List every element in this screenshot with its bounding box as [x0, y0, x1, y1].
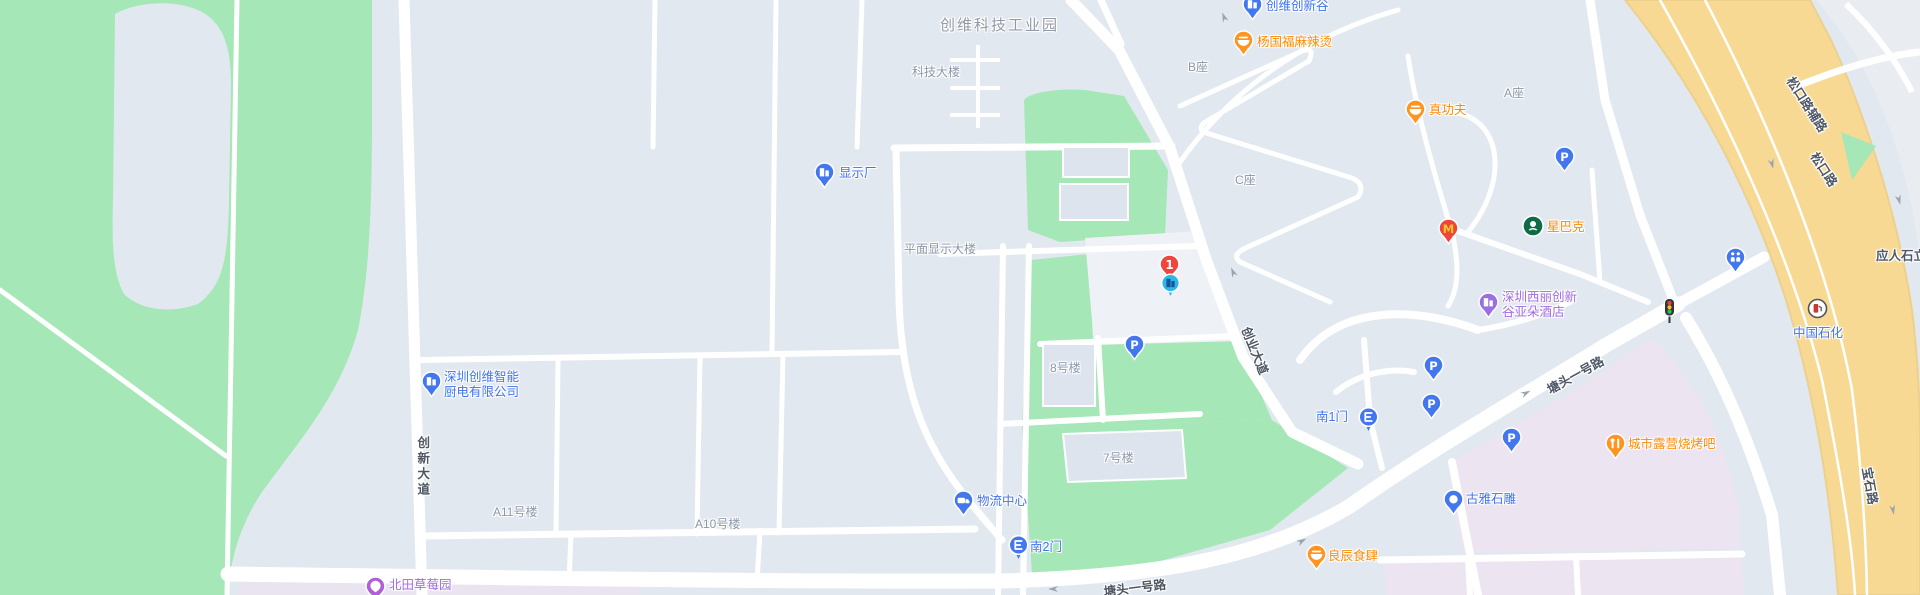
label-chuangwei-tech-industrial-park: 创维科技工业园: [940, 17, 1059, 35]
label-block-b: B座: [1188, 60, 1208, 75]
svg-text:P: P: [1560, 149, 1568, 163]
label-songkou-road-auxiliary: 松口路辅路: [1783, 75, 1830, 136]
map-overlay-layer: 创维科技工业园科技大楼平面显示大楼B座C座A座8号楼7号楼A11号楼A10号楼显…: [0, 0, 1920, 595]
marker-guya-stone-carving-icon[interactable]: [1442, 489, 1465, 516]
marker-city-camping-bbq-icon[interactable]: [1604, 433, 1627, 460]
label-guya-stone-carving[interactable]: 古雅石雕: [1466, 492, 1516, 507]
marker-starbucks-icon[interactable]: [1521, 214, 1545, 238]
svg-text:P: P: [1507, 430, 1515, 444]
marker-south-gate-2-icon[interactable]: [1007, 534, 1030, 561]
label-south-gate-2[interactable]: 南2门: [1030, 540, 1062, 555]
marker-parking-a-icon[interactable]: P: [1553, 146, 1576, 173]
marker-xianshichang-icon[interactable]: [813, 162, 836, 189]
label-atour-hotel[interactable]: 深圳西丽创新 谷亚朵酒店: [1502, 290, 1577, 321]
label-beitian-strawberry-garden[interactable]: 北田草莓园: [389, 578, 452, 593]
label-zhengongfu[interactable]: 真功夫: [1429, 103, 1467, 118]
marker-yangguofu-malatang-icon[interactable]: [1232, 30, 1255, 57]
label-logistics-center[interactable]: 物流中心: [977, 494, 1027, 509]
marker-zhengongfu-icon[interactable]: [1404, 99, 1427, 126]
label-block-a: A座: [1504, 86, 1524, 101]
label-tangtou-no1-road-east: 塘头一号路: [1545, 354, 1607, 398]
label-building-a11: A11号楼: [493, 505, 537, 520]
label-building-8: 8号楼: [1050, 361, 1081, 376]
marker-company-highlight-icon[interactable]: [1159, 273, 1182, 300]
label-chuangye-avenue: 创业大道: [1238, 325, 1271, 377]
marker-parking-b-icon[interactable]: P: [1123, 334, 1146, 361]
marker-parking-e-icon[interactable]: P: [1500, 427, 1523, 454]
marker-chuangwei-innovation-valley-icon[interactable]: [1241, 0, 1264, 21]
svg-text:P: P: [1130, 337, 1138, 351]
marker-parking-c-icon[interactable]: P: [1422, 355, 1445, 382]
label-tangtou-no1-road-south: 塘头一号路: [1103, 578, 1167, 595]
marker-restroom-icon[interactable]: [1724, 247, 1747, 274]
svg-text:M: M: [1442, 221, 1453, 235]
marker-parking-d-icon[interactable]: P: [1420, 393, 1443, 420]
marker-south-gate-1-icon[interactable]: [1357, 406, 1380, 433]
label-south-gate-1[interactable]: 南1门: [1316, 410, 1348, 425]
label-flat-display-building: 平面显示大楼: [904, 242, 976, 257]
marker-logistics-center-icon[interactable]: [952, 490, 975, 517]
label-chuangxin-avenue: 创新大道: [414, 436, 429, 498]
svg-text:P: P: [1429, 358, 1437, 372]
label-yangguofu-malatang[interactable]: 杨国福麻辣烫: [1257, 35, 1332, 50]
label-yingrenshi-interchange: 应人石立交: [1876, 249, 1920, 264]
label-starbucks[interactable]: 星巴克: [1547, 220, 1585, 235]
label-xianshichang[interactable]: 显示厂: [839, 166, 877, 181]
label-songkou-road: 松口路: [1806, 150, 1839, 190]
svg-text:1: 1: [1165, 257, 1173, 271]
label-city-camping-bbq[interactable]: 城市露营烧烤吧: [1628, 437, 1716, 452]
label-liangchen-restaurant[interactable]: 良辰食肆: [1328, 549, 1378, 564]
label-keji-building: 科技大楼: [912, 65, 960, 80]
label-block-c: C座: [1235, 173, 1256, 188]
map-canvas[interactable]: 创维科技工业园科技大楼平面显示大楼B座C座A座8号楼7号楼A11号楼A10号楼显…: [0, 0, 1920, 595]
label-chuangwei-innovation-valley[interactable]: 创维创新谷: [1266, 0, 1329, 14]
svg-text:P: P: [1427, 396, 1435, 410]
marker-atour-hotel-icon[interactable]: [1477, 292, 1500, 319]
marker-sinopec-station-icon[interactable]: [1807, 298, 1828, 319]
marker-liangchen-restaurant-icon[interactable]: [1305, 544, 1328, 571]
marker-chuangwei-smart-kitchen-icon[interactable]: [420, 371, 443, 398]
label-chuangwei-smart-kitchen[interactable]: 深圳创维智能 厨电有限公司: [444, 370, 519, 401]
label-baoshi-road: 宝石路: [1858, 466, 1880, 506]
label-sinopec[interactable]: 中国石化: [1793, 326, 1843, 341]
marker-beitian-strawberry-garden-icon[interactable]: [364, 576, 387, 595]
label-building-7: 7号楼: [1103, 451, 1134, 466]
marker-mcdonalds-icon[interactable]: M: [1437, 218, 1460, 245]
label-building-a10: A10号楼: [695, 517, 740, 532]
marker-traffic-light-icon[interactable]: [1663, 298, 1676, 325]
